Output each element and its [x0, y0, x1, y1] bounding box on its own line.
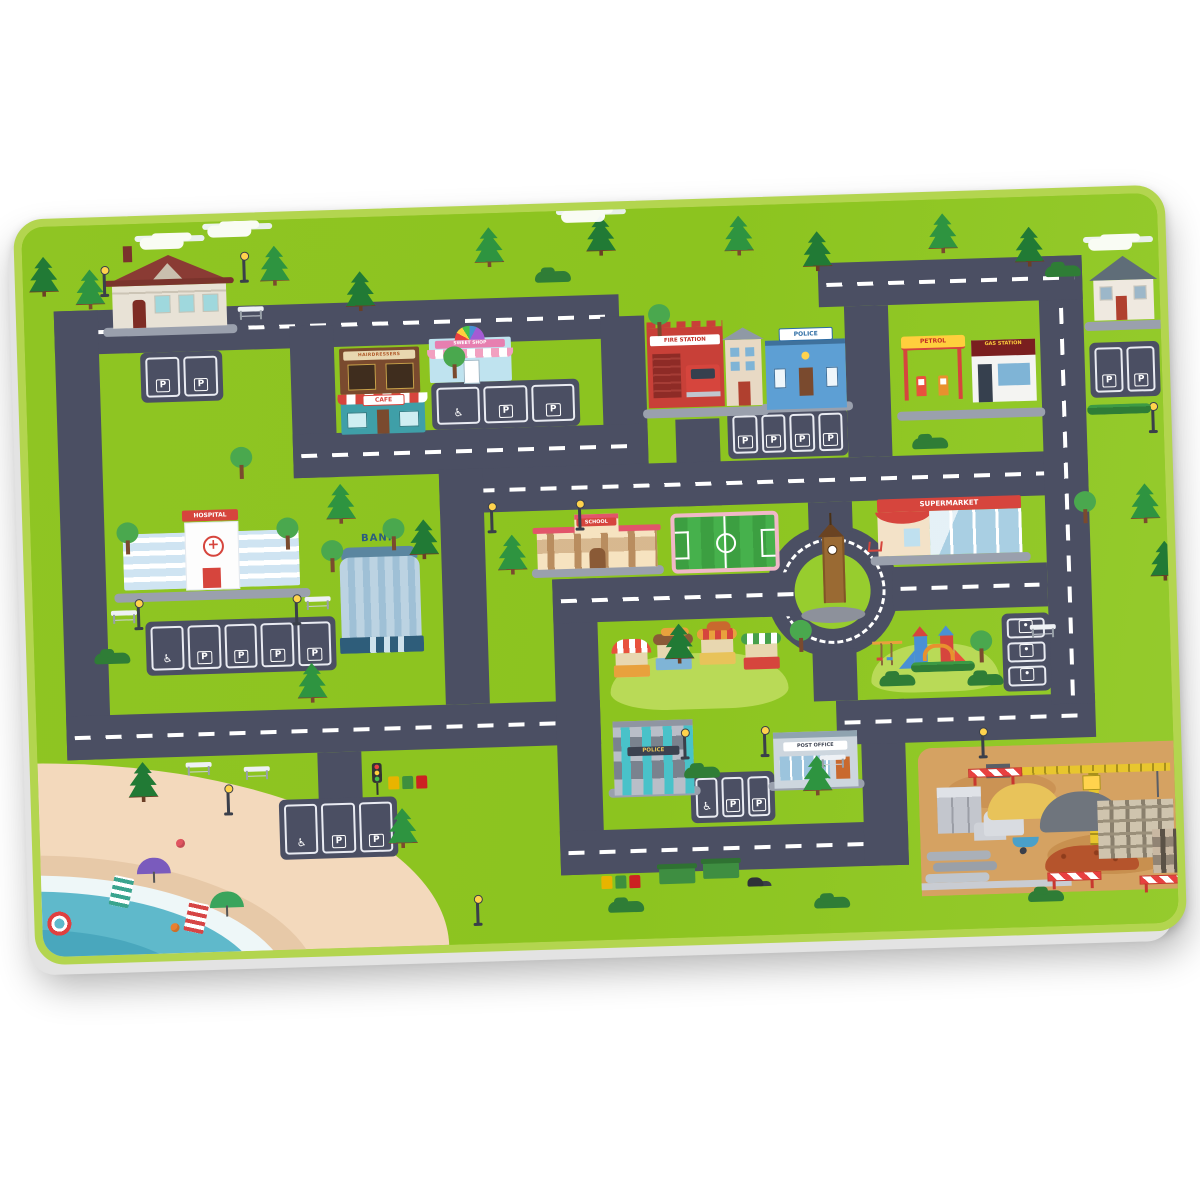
shop-window — [347, 364, 376, 391]
lamp-icon — [490, 507, 494, 531]
wheelchair-icon: ♿ — [454, 407, 464, 418]
bush-icon — [1045, 265, 1081, 277]
trash-icon — [747, 877, 763, 886]
wheelchair-icon: ♿ — [702, 801, 712, 812]
parking-lot: ♿PPPP — [145, 616, 337, 676]
pine-icon — [259, 245, 290, 286]
construction-barrier-icon — [1139, 874, 1178, 885]
lamp-icon — [683, 733, 687, 757]
parking-space: • — [1007, 641, 1046, 662]
bush-icon — [879, 674, 915, 686]
pine-icon — [1129, 483, 1160, 524]
parking-space: • — [1008, 665, 1047, 686]
cafe-window — [347, 412, 367, 429]
bench-icon — [111, 610, 137, 616]
pine-icon — [28, 256, 59, 297]
construction-barrier-icon — [968, 767, 1022, 778]
tree-icon — [276, 517, 299, 550]
parking-space: P — [721, 777, 744, 818]
pine-icon — [473, 227, 504, 268]
police-office-sign: POLICE — [627, 746, 679, 757]
parking-lot: PP — [1089, 341, 1161, 398]
pine-icon — [802, 231, 833, 272]
parking-lot: ♿PP — [279, 796, 399, 860]
parking-space: P — [358, 801, 393, 852]
bush-icon — [814, 897, 850, 909]
parking-space: P — [818, 413, 844, 452]
lamp-icon — [763, 731, 767, 755]
stall-counter — [699, 652, 735, 665]
parking-space: P — [531, 384, 575, 422]
bank-sign: BANK — [337, 531, 421, 545]
school-sign: SCHOOL — [576, 517, 616, 526]
road-segment — [818, 255, 1083, 307]
window — [1099, 286, 1112, 300]
gas-station: PETROL GAS STATION — [901, 325, 1040, 421]
window — [774, 368, 787, 388]
lamp-icon — [242, 257, 246, 281]
lamp-icon — [1151, 407, 1155, 431]
parking-letter: P — [234, 650, 249, 663]
cloud-icon — [139, 237, 183, 250]
bins-icon — [388, 776, 399, 789]
parking-space: P — [484, 385, 528, 423]
parking-letter: P — [738, 435, 753, 448]
window — [826, 367, 839, 387]
police-sign: POLICE — [779, 327, 833, 342]
petrol-canopy-sign: PETROL — [901, 335, 965, 351]
supermarket-glass-front — [929, 508, 1022, 555]
soccer-field — [670, 511, 780, 574]
disabled-parking-space: ♿ — [695, 778, 718, 819]
supermarket-window — [904, 528, 921, 546]
parking-lot: ♿PP — [431, 379, 580, 430]
shopping-cart-icon — [868, 541, 883, 551]
parking-letter: P — [1102, 374, 1117, 387]
hospital-door — [203, 568, 222, 589]
hairdresser-sign: HAIRDRESSERS — [343, 350, 415, 361]
construction-barrier-icon — [1047, 871, 1101, 882]
pine-icon — [927, 213, 958, 254]
bench-icon — [238, 306, 264, 312]
disabled-parking-space: ♿ — [150, 626, 184, 671]
pine-icon — [325, 483, 356, 524]
parking-letter: P — [156, 379, 171, 392]
big-ben-tower-icon — [822, 537, 846, 604]
lamp-icon — [476, 900, 480, 924]
dumpster-icon — [703, 862, 739, 879]
building-under-construction — [1152, 828, 1179, 873]
parking-space: P — [732, 415, 758, 454]
stall-counter — [744, 657, 780, 670]
parking-space: P — [187, 625, 221, 670]
parking-letter: P — [795, 434, 810, 447]
tree-icon — [1074, 491, 1097, 524]
tower-roof — [912, 626, 928, 636]
parking-space: P — [145, 357, 180, 398]
parking-space: P — [747, 776, 770, 817]
hedge-icon — [911, 661, 975, 673]
cafe-window — [399, 410, 419, 427]
tree-icon — [230, 447, 253, 480]
curb — [1085, 320, 1165, 331]
shop-door — [978, 364, 993, 402]
goal-box-left — [675, 531, 690, 559]
canopy-post — [903, 349, 909, 401]
window — [178, 294, 195, 312]
shop-door — [463, 360, 480, 384]
fuel-pump-icon — [938, 375, 949, 395]
shop-window — [998, 363, 1031, 386]
cafe-sign: CAFE — [362, 394, 404, 406]
parking-letter: P — [307, 648, 322, 661]
parking-space: P — [1094, 347, 1123, 393]
window — [1133, 285, 1146, 299]
cloud-icon — [1088, 238, 1132, 251]
cafe-building: CAFE — [340, 394, 425, 435]
bench-icon — [305, 596, 331, 602]
cloud-icon — [207, 224, 251, 237]
bush-icon — [967, 674, 1003, 686]
tree-icon — [116, 522, 139, 555]
road-segment — [812, 648, 858, 701]
parking-letter: P — [498, 405, 513, 418]
bush-icon — [684, 766, 720, 778]
stall-counter — [614, 665, 650, 678]
shop-window — [385, 363, 414, 390]
parking-letter: P — [332, 835, 347, 848]
street-market — [609, 626, 789, 715]
lamp-icon — [295, 599, 299, 623]
lamp-icon — [578, 505, 582, 529]
tlight-icon — [372, 763, 383, 783]
parking-letter: P — [546, 403, 561, 416]
market-stall-burger — [699, 628, 736, 669]
pine-icon — [1014, 226, 1045, 267]
bush-icon — [1028, 890, 1064, 902]
lamp-icon — [981, 732, 985, 756]
house-roof — [1089, 255, 1158, 281]
pine-icon — [497, 534, 528, 575]
pine-icon — [723, 215, 754, 256]
stall-canopy — [611, 638, 651, 653]
lamp-icon — [226, 789, 230, 813]
dumpster-icon — [659, 867, 695, 884]
house-top-right — [1088, 251, 1158, 331]
parking-letter: P — [271, 649, 286, 662]
bench-icon — [186, 762, 212, 768]
cloud-icon — [561, 210, 605, 223]
hospital-sign: HOSPITAL — [182, 509, 238, 522]
play-mat-surface: HOSPITAL + BANK SCHOOL SUPERMARKET — [21, 193, 1179, 957]
sweet-shop: SWEET SHOP — [429, 337, 512, 383]
window — [745, 347, 754, 356]
window — [154, 295, 171, 313]
desk-mat: HOSPITAL + BANK SCHOOL SUPERMARKET — [13, 185, 1187, 966]
parking-lot: ♿PP — [690, 771, 775, 824]
tree-icon — [648, 304, 671, 337]
bench-icon — [1030, 624, 1056, 630]
road-segment — [317, 751, 362, 800]
house-door — [1116, 296, 1128, 320]
curb — [114, 588, 310, 603]
play-arch — [922, 643, 955, 661]
disabled-parking-space: ♿ — [436, 387, 480, 425]
parking-lot: PP — [140, 350, 223, 402]
bench-icon — [820, 755, 846, 761]
playground — [869, 612, 999, 698]
bank-glass-tower — [339, 556, 421, 640]
fire-truck-icon — [686, 364, 721, 397]
supermarket-building: SUPERMARKET — [875, 495, 1025, 565]
fuel-pump-icon — [916, 376, 927, 396]
window — [202, 294, 219, 312]
parking-space: P — [321, 803, 356, 854]
parking-letter: P — [369, 834, 384, 847]
tree-icon — [789, 620, 812, 653]
house-door — [132, 300, 146, 328]
school-building: SCHOOL — [536, 512, 658, 578]
tree-icon — [321, 540, 344, 573]
bank-building: BANK — [337, 531, 425, 660]
road-segment — [439, 469, 490, 705]
wheelchair-icon: ♿ — [297, 837, 307, 848]
stall-counter — [656, 657, 692, 670]
tree-icon — [382, 518, 405, 551]
swing-set-icon — [872, 641, 902, 645]
garage-door — [652, 353, 681, 398]
canopy-post — [957, 347, 963, 399]
road-segment — [892, 562, 1048, 611]
tree-icon — [970, 630, 993, 663]
tree-icon — [443, 346, 466, 379]
parking-letter: P — [766, 434, 781, 447]
parking-space: P — [1126, 346, 1155, 392]
lamp-icon — [102, 271, 106, 295]
product-photo: { "product": { "description": "Kids city… — [0, 0, 1200, 1200]
parking-space: P — [183, 356, 218, 397]
market-stall-tent — [613, 639, 650, 680]
bush-icon — [535, 271, 571, 283]
parking-letter: P — [1134, 373, 1149, 386]
bench-icon — [244, 766, 270, 772]
parking-letter: • — [1019, 644, 1033, 657]
tower-roof — [938, 625, 954, 635]
hedge-icon — [1087, 403, 1151, 415]
bush-icon — [912, 437, 948, 449]
market-stall-fruit — [743, 633, 780, 674]
parking-letter: P — [193, 378, 208, 391]
parking-letter: P — [752, 798, 767, 811]
annex-door — [738, 381, 751, 405]
road-segment — [552, 571, 817, 623]
pine-icon — [1149, 540, 1179, 581]
school-door — [589, 548, 606, 568]
pine-icon — [345, 271, 376, 312]
disabled-parking-space: ♿ — [284, 804, 319, 855]
parking-space: P — [297, 621, 331, 666]
hairdresser-shop: HAIRDRESSERS — [339, 346, 420, 394]
crane-cab — [1082, 775, 1100, 791]
parking-space: P — [261, 622, 295, 667]
fire-station-annex — [725, 339, 763, 406]
big-ben-spire-icon — [829, 513, 831, 525]
parking-letter: P — [823, 433, 838, 446]
parking-space: P — [761, 414, 787, 453]
parking-letter: • — [1020, 668, 1034, 681]
bush-icon — [608, 901, 644, 913]
striped-awning — [427, 348, 513, 360]
parking-space: P — [789, 413, 815, 452]
road-segment — [54, 310, 112, 760]
pine-icon — [74, 269, 105, 310]
wheelchair-icon: ♿ — [163, 653, 173, 664]
parking-letter: P — [197, 651, 212, 664]
cafe-door — [377, 409, 390, 433]
window — [746, 361, 755, 370]
gas-station-sign: GAS STATION — [971, 339, 1035, 357]
parking-space: P — [224, 624, 258, 669]
road-segment — [844, 305, 893, 457]
parking-letter: P — [726, 799, 741, 812]
bank-entrance — [340, 635, 424, 654]
window — [731, 362, 740, 371]
cement-blocks — [937, 786, 982, 833]
lamp-icon — [137, 604, 141, 628]
police-door — [799, 367, 814, 395]
window — [730, 348, 739, 357]
bins-icon — [601, 876, 612, 889]
goal-box-right — [761, 529, 776, 557]
burger-icon — [706, 621, 730, 631]
police-station-building: POLICE — [765, 326, 848, 412]
curb — [897, 407, 1045, 421]
bush-icon — [94, 652, 130, 664]
house-top-left — [107, 241, 232, 337]
